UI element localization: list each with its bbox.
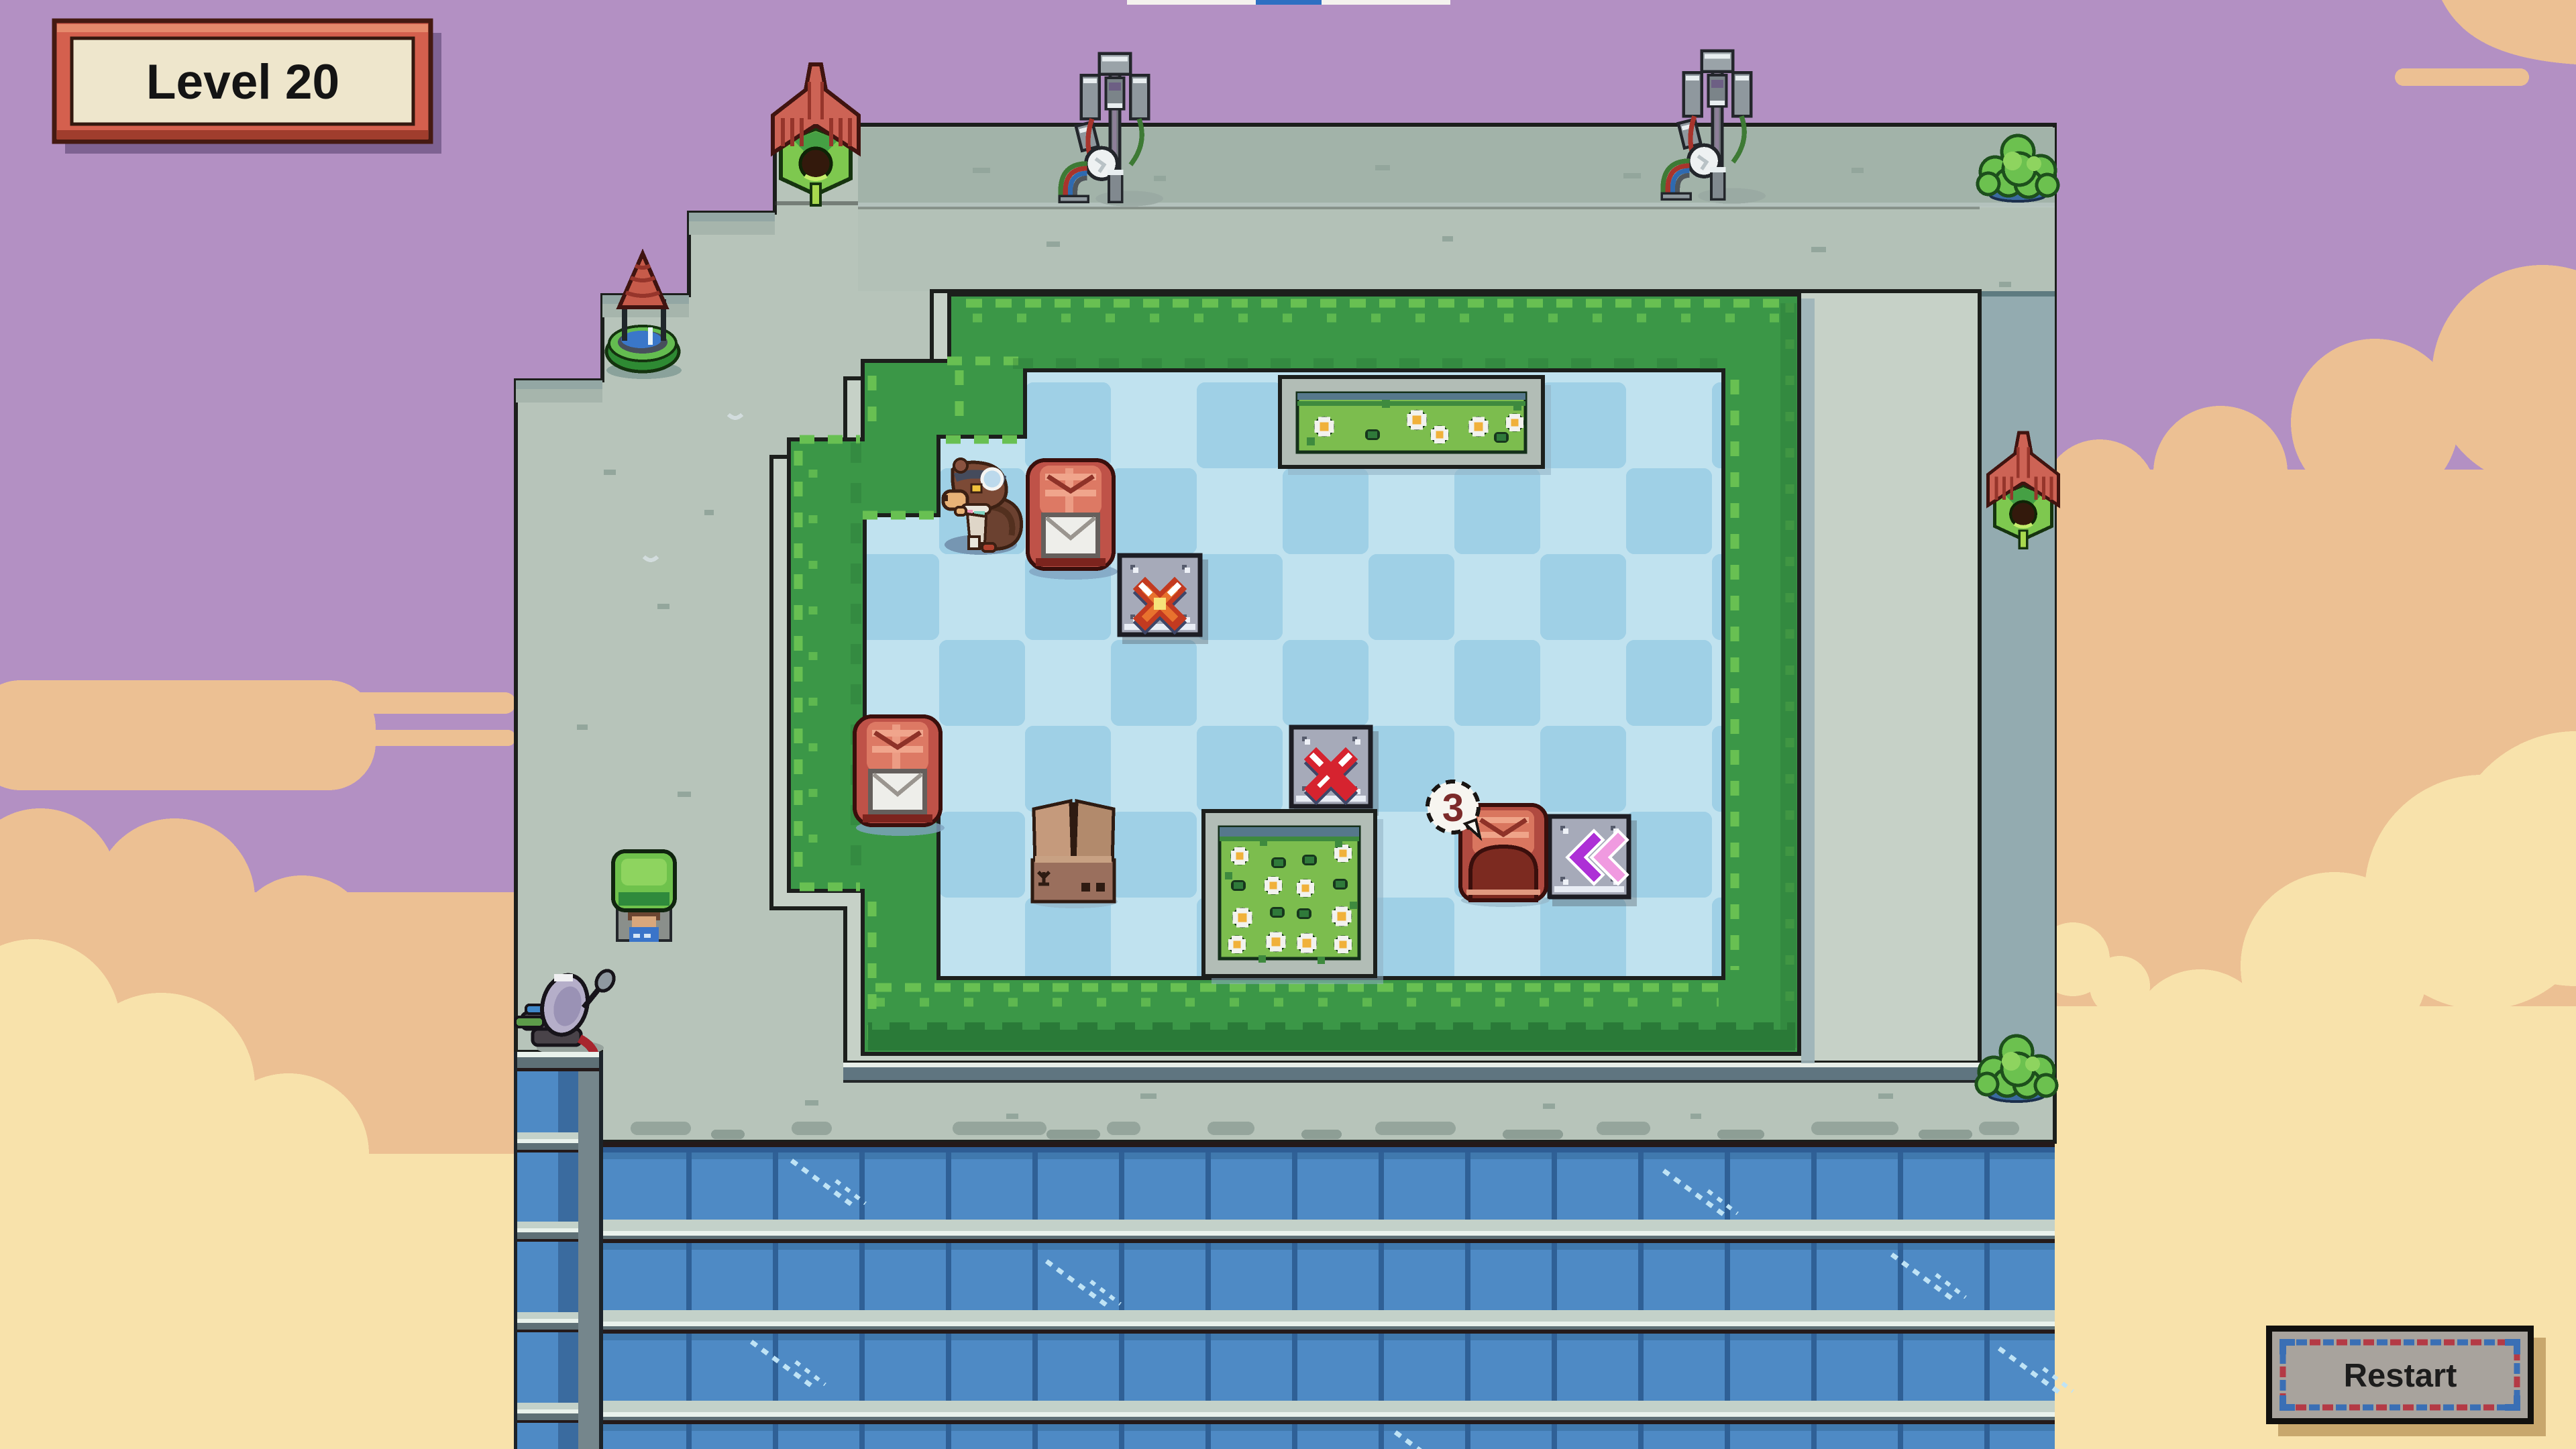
svg-text:3: 3 [1442, 786, 1464, 830]
svg-text:Restart: Restart [2344, 1358, 2457, 1394]
svg-text:Level 20: Level 20 [146, 55, 339, 109]
